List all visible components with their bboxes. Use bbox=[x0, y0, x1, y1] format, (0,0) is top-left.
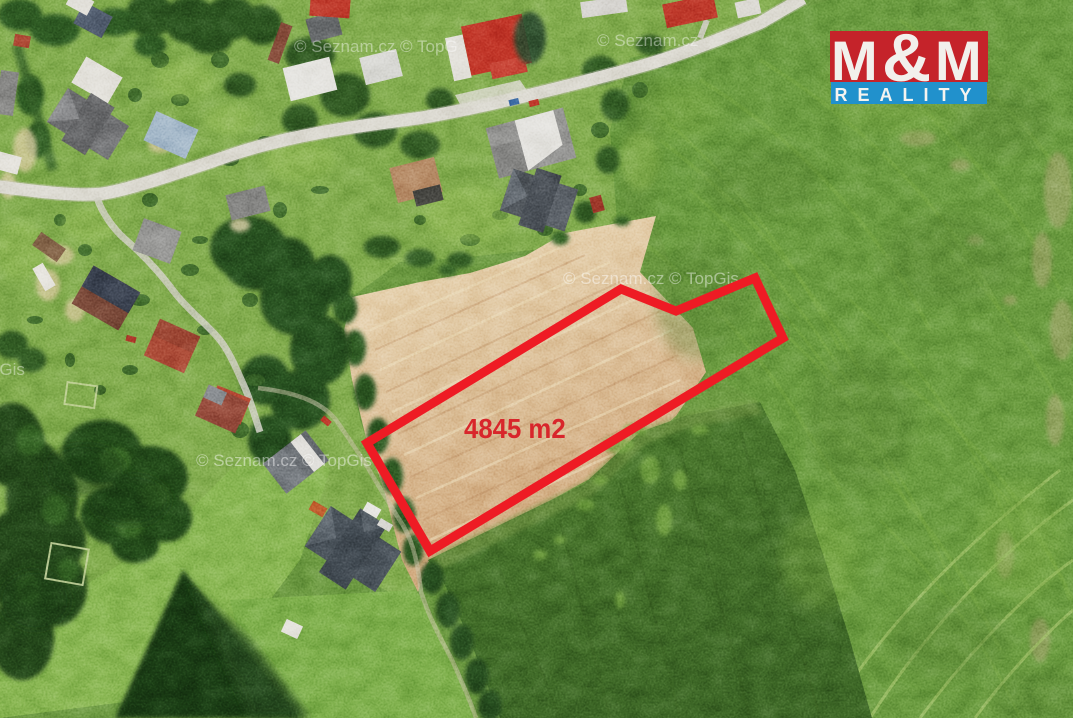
svg-text:TopGis: TopGis bbox=[0, 360, 25, 379]
svg-text:M: M bbox=[935, 29, 982, 92]
svg-text:© Seznam.cz © TopG: © Seznam.cz © TopG bbox=[294, 37, 458, 56]
svg-text:© Seznam.cz © TopGis: © Seznam.cz © TopGis bbox=[196, 451, 372, 470]
svg-text:4845 m2: 4845 m2 bbox=[464, 413, 566, 444]
svg-text:M: M bbox=[831, 29, 878, 92]
svg-text:© Seznam.cz: © Seznam.cz bbox=[597, 31, 698, 50]
svg-text:© Seznam.cz © TopGis: © Seznam.cz © TopGis bbox=[563, 269, 739, 288]
svg-text:REALITY: REALITY bbox=[834, 85, 981, 105]
